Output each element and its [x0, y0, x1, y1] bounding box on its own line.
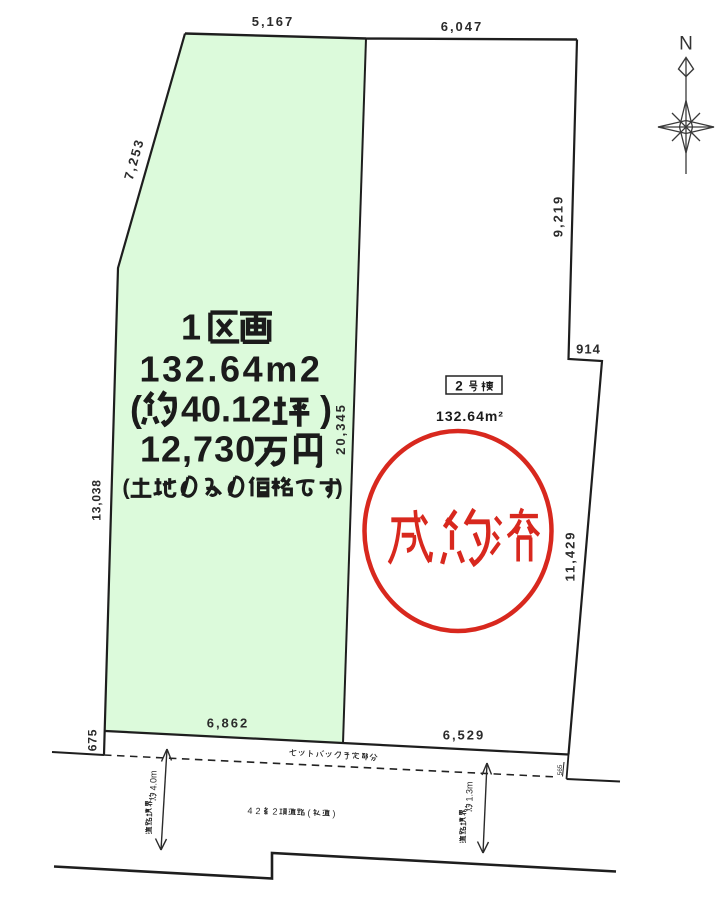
svg-text:N: N	[679, 34, 693, 55]
svg-text:1: 1	[181, 307, 201, 348]
svg-text:4: 4	[247, 806, 252, 816]
svg-text:6,862: 6,862	[207, 716, 250, 731]
svg-text:13,038: 13,038	[90, 479, 104, 521]
svg-text:12,730: 12,730	[140, 429, 256, 470]
svg-text:2: 2	[255, 806, 260, 816]
svg-text:6,047: 6,047	[441, 19, 484, 34]
svg-text:): )	[332, 809, 335, 819]
svg-text:9,219: 9,219	[551, 195, 566, 238]
svg-text:675: 675	[86, 729, 100, 751]
svg-text:(: (	[307, 808, 310, 818]
svg-text:20,345: 20,345	[333, 403, 348, 455]
svg-text:11,429: 11,429	[563, 530, 578, 581]
svg-text:6,529: 6,529	[443, 728, 486, 743]
svg-text:565: 565	[557, 764, 564, 775]
svg-text:914: 914	[576, 342, 601, 357]
svg-text:40.12: 40.12	[181, 389, 271, 430]
svg-text:): )	[320, 389, 332, 430]
svg-text:2: 2	[455, 379, 463, 394]
svg-text:5,167: 5,167	[252, 14, 295, 29]
svg-text:1.3m: 1.3m	[464, 781, 474, 801]
svg-text:2: 2	[272, 807, 277, 817]
svg-text:4.0m: 4.0m	[148, 770, 158, 790]
svg-text:132.64m2: 132.64m2	[140, 349, 323, 390]
svg-text:132.64m²: 132.64m²	[436, 408, 504, 424]
svg-text:(: (	[130, 389, 142, 430]
svg-text:): )	[335, 475, 342, 500]
svg-text:(: (	[122, 475, 130, 500]
